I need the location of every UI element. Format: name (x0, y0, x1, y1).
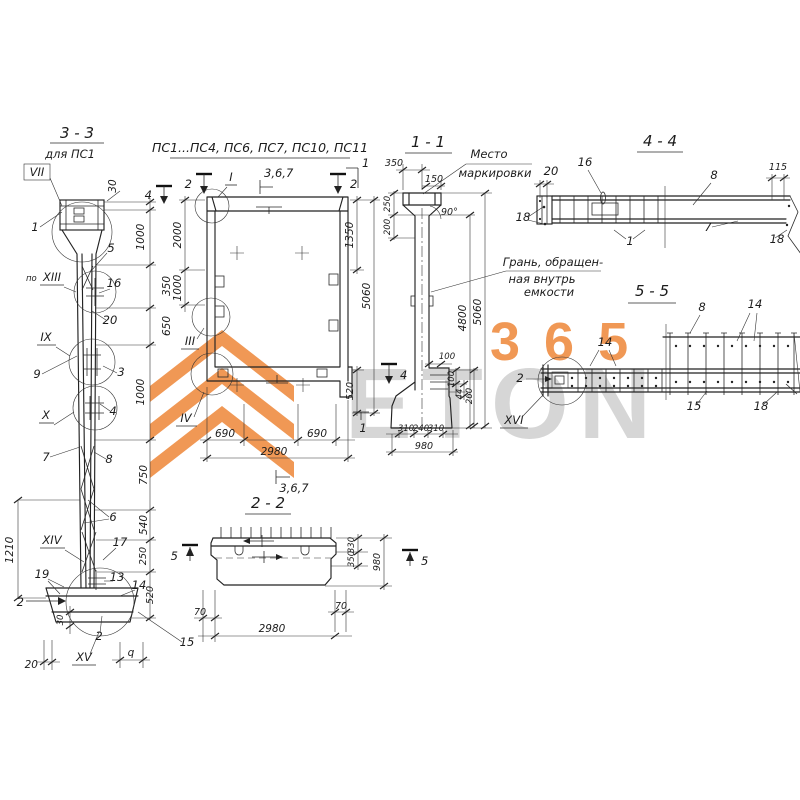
dim-label: 100 (439, 352, 455, 362)
dim-label: 70 (335, 601, 347, 612)
dim-label: 1000 (135, 378, 147, 405)
dim-label: 980 (415, 441, 433, 452)
detail-marker: X (41, 408, 51, 422)
section-cut-label: 5 (171, 549, 178, 563)
section-cut-label: 5 (421, 554, 428, 568)
dim-label: 690 (307, 428, 327, 440)
dim-label: 1350 (344, 221, 356, 248)
callout: 18 (754, 399, 769, 413)
dim-label: 650 (161, 316, 173, 336)
dim-label: 70 (194, 607, 206, 618)
note-text: маркировки (459, 166, 533, 180)
note-text: емкости (524, 285, 575, 299)
callout: 14 (748, 297, 763, 311)
section-cut-label: 2 (17, 595, 24, 609)
dim-label: q (128, 647, 135, 659)
dim-label: 520 (145, 586, 156, 604)
callout: 16 (578, 155, 593, 169)
section-cut-label: 2 (185, 177, 192, 191)
detail-marker: I (229, 170, 233, 184)
view-title: 5 - 5 (635, 282, 669, 300)
dim-label: 310 (398, 424, 414, 434)
section-cut-label: 4 (400, 368, 407, 382)
view-title: 4 - 4 (643, 132, 677, 150)
callout: 3 (117, 365, 124, 379)
callout: 19 (35, 567, 50, 581)
callout: 1 (626, 234, 633, 248)
dim-label: 520 (345, 382, 356, 400)
dim-label: 5060 (361, 282, 373, 309)
callout: 14 (132, 578, 147, 592)
view-section-3-3: 3 - 3 для ПС1 1000 350 650 1000 750 540 … (4, 124, 194, 671)
callout: 2 (516, 371, 523, 385)
dim-label: 540 (138, 515, 150, 535)
group-label: 3,6,7 (264, 166, 294, 180)
detail-marker: XVI (503, 413, 524, 427)
dim-label: 1210 (4, 536, 16, 563)
dim-label: 150 (425, 174, 443, 185)
callout: 1 (31, 220, 38, 234)
detail-marker: IX (40, 330, 52, 344)
dim-label: 980 (372, 553, 383, 571)
view-section-4-4: 4 - 4 16 20 8 115 18 7 18 1 (516, 132, 800, 254)
callout: 5 (107, 241, 114, 255)
dim-label: 2980 (261, 446, 288, 458)
watermark-logo-chevron (150, 330, 294, 402)
dim-label: 2980 (259, 623, 286, 635)
callout: 7 (704, 220, 712, 234)
dim-label: 44 (455, 389, 465, 400)
note-text: Место (470, 147, 507, 161)
detail-marker: XIII (42, 270, 62, 284)
detail-marker: XIV (41, 533, 62, 547)
view-section-2-2: 2 - 2 70 70 2980 330 350 980 5 5 (171, 494, 429, 642)
detail-marker: IV (180, 411, 192, 425)
detail-marker: XV (75, 650, 93, 664)
dim-label: 240 (413, 424, 429, 434)
dim-label: 330 (347, 537, 357, 553)
dim-label: 5060 (472, 298, 484, 325)
dim-label: 4800 (457, 304, 469, 331)
detail-marker: VII (30, 165, 45, 179)
view-title: 3 - 3 (60, 124, 94, 142)
dim-label: 2000 (172, 221, 184, 248)
detail-marker-prefix: по (26, 274, 37, 284)
dim-label: 250 (383, 196, 393, 212)
note-text: Грань, обращен- (503, 255, 603, 269)
dim-label: 20 (25, 659, 39, 671)
dim-label: 200 (383, 219, 393, 235)
section-cut-label: 4 (145, 188, 152, 202)
group-label: 3,6,7 (279, 481, 309, 495)
dim-label: 100 (447, 371, 457, 387)
callout: 9 (33, 367, 40, 381)
callout: 13 (110, 570, 125, 584)
callout: 14 (598, 335, 613, 349)
watermark: ETON 365 (150, 312, 661, 478)
section-cut-label: 1 (359, 421, 366, 435)
view-title: 1 - 1 (411, 133, 445, 151)
view-subtitle: для ПС1 (44, 147, 95, 161)
dim-label: 115 (769, 162, 787, 173)
watermark-number-text: 365 (490, 312, 652, 372)
dim-label: 250 (138, 547, 149, 565)
callout: 20 (103, 313, 118, 327)
blueprint-canvas: ETON 365 3 - 3 для ПС1 1000 350 650 1000… (0, 0, 800, 800)
callout: 8 (105, 452, 112, 466)
view-title: 2 - 2 (251, 494, 285, 512)
section-cut-label: 1 (362, 156, 369, 170)
callout: 8 (698, 300, 705, 314)
dim-label: 350 (347, 551, 357, 567)
angle-label: 90° (441, 207, 458, 218)
callout: 7 (42, 450, 50, 464)
dim-label: 20 (544, 164, 559, 178)
dim-label: 1000 (135, 223, 147, 250)
dim-label: 350 (385, 158, 403, 169)
callout: 16 (107, 276, 122, 290)
drawing-sheet: ETON 365 3 - 3 для ПС1 1000 350 650 1000… (0, 0, 800, 800)
dim-label: 260 (465, 388, 475, 404)
dim-label: 30 (107, 179, 119, 193)
dim-label: 1000 (172, 274, 184, 301)
callout: 2 (95, 629, 102, 643)
callout: 17 (113, 535, 128, 549)
section-cut-label: 2 (350, 177, 357, 191)
callout: 4 (109, 404, 116, 418)
detail-marker: III (185, 334, 196, 348)
callout: 8 (710, 168, 717, 182)
dim-label: 690 (215, 428, 235, 440)
view-title: ПС1...ПС4, ПС6, ПС7, ПС10, ПС11 (152, 140, 368, 155)
dim-label: 310 (428, 424, 444, 434)
dim-label: 750 (138, 465, 150, 485)
callout: 18 (770, 232, 785, 246)
callout: 6 (109, 510, 116, 524)
note-text: ная внутрь (508, 272, 575, 286)
dim-label: 30 (56, 615, 66, 626)
